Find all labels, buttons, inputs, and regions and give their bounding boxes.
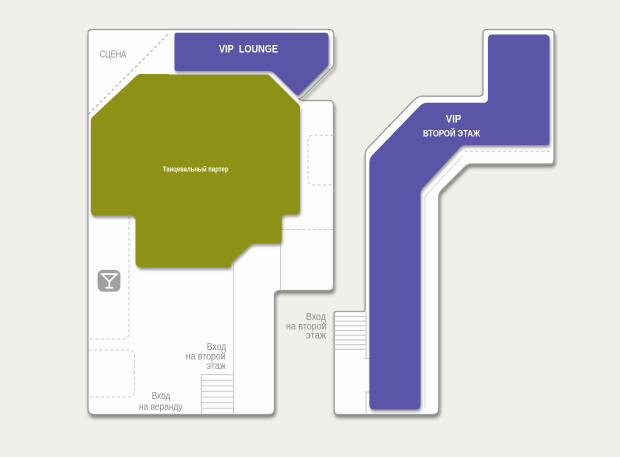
svg-text:СЦЕНА: СЦЕНА	[100, 49, 127, 60]
svg-text:Вход: Вход	[152, 391, 171, 402]
svg-text:VIP: VIP	[446, 113, 462, 125]
svg-text:Танцевальный партер: Танцевальный партер	[163, 164, 229, 173]
svg-text:этаж: этаж	[207, 361, 227, 372]
svg-text:этаж: этаж	[306, 331, 326, 342]
svg-text:ВТОРОЙ ЭТАЖ: ВТОРОЙ ЭТАЖ	[423, 127, 480, 139]
svg-text:VIP LOUNGE: VIP LOUNGE	[219, 43, 278, 55]
svg-text:на веранду: на веранду	[139, 402, 183, 413]
